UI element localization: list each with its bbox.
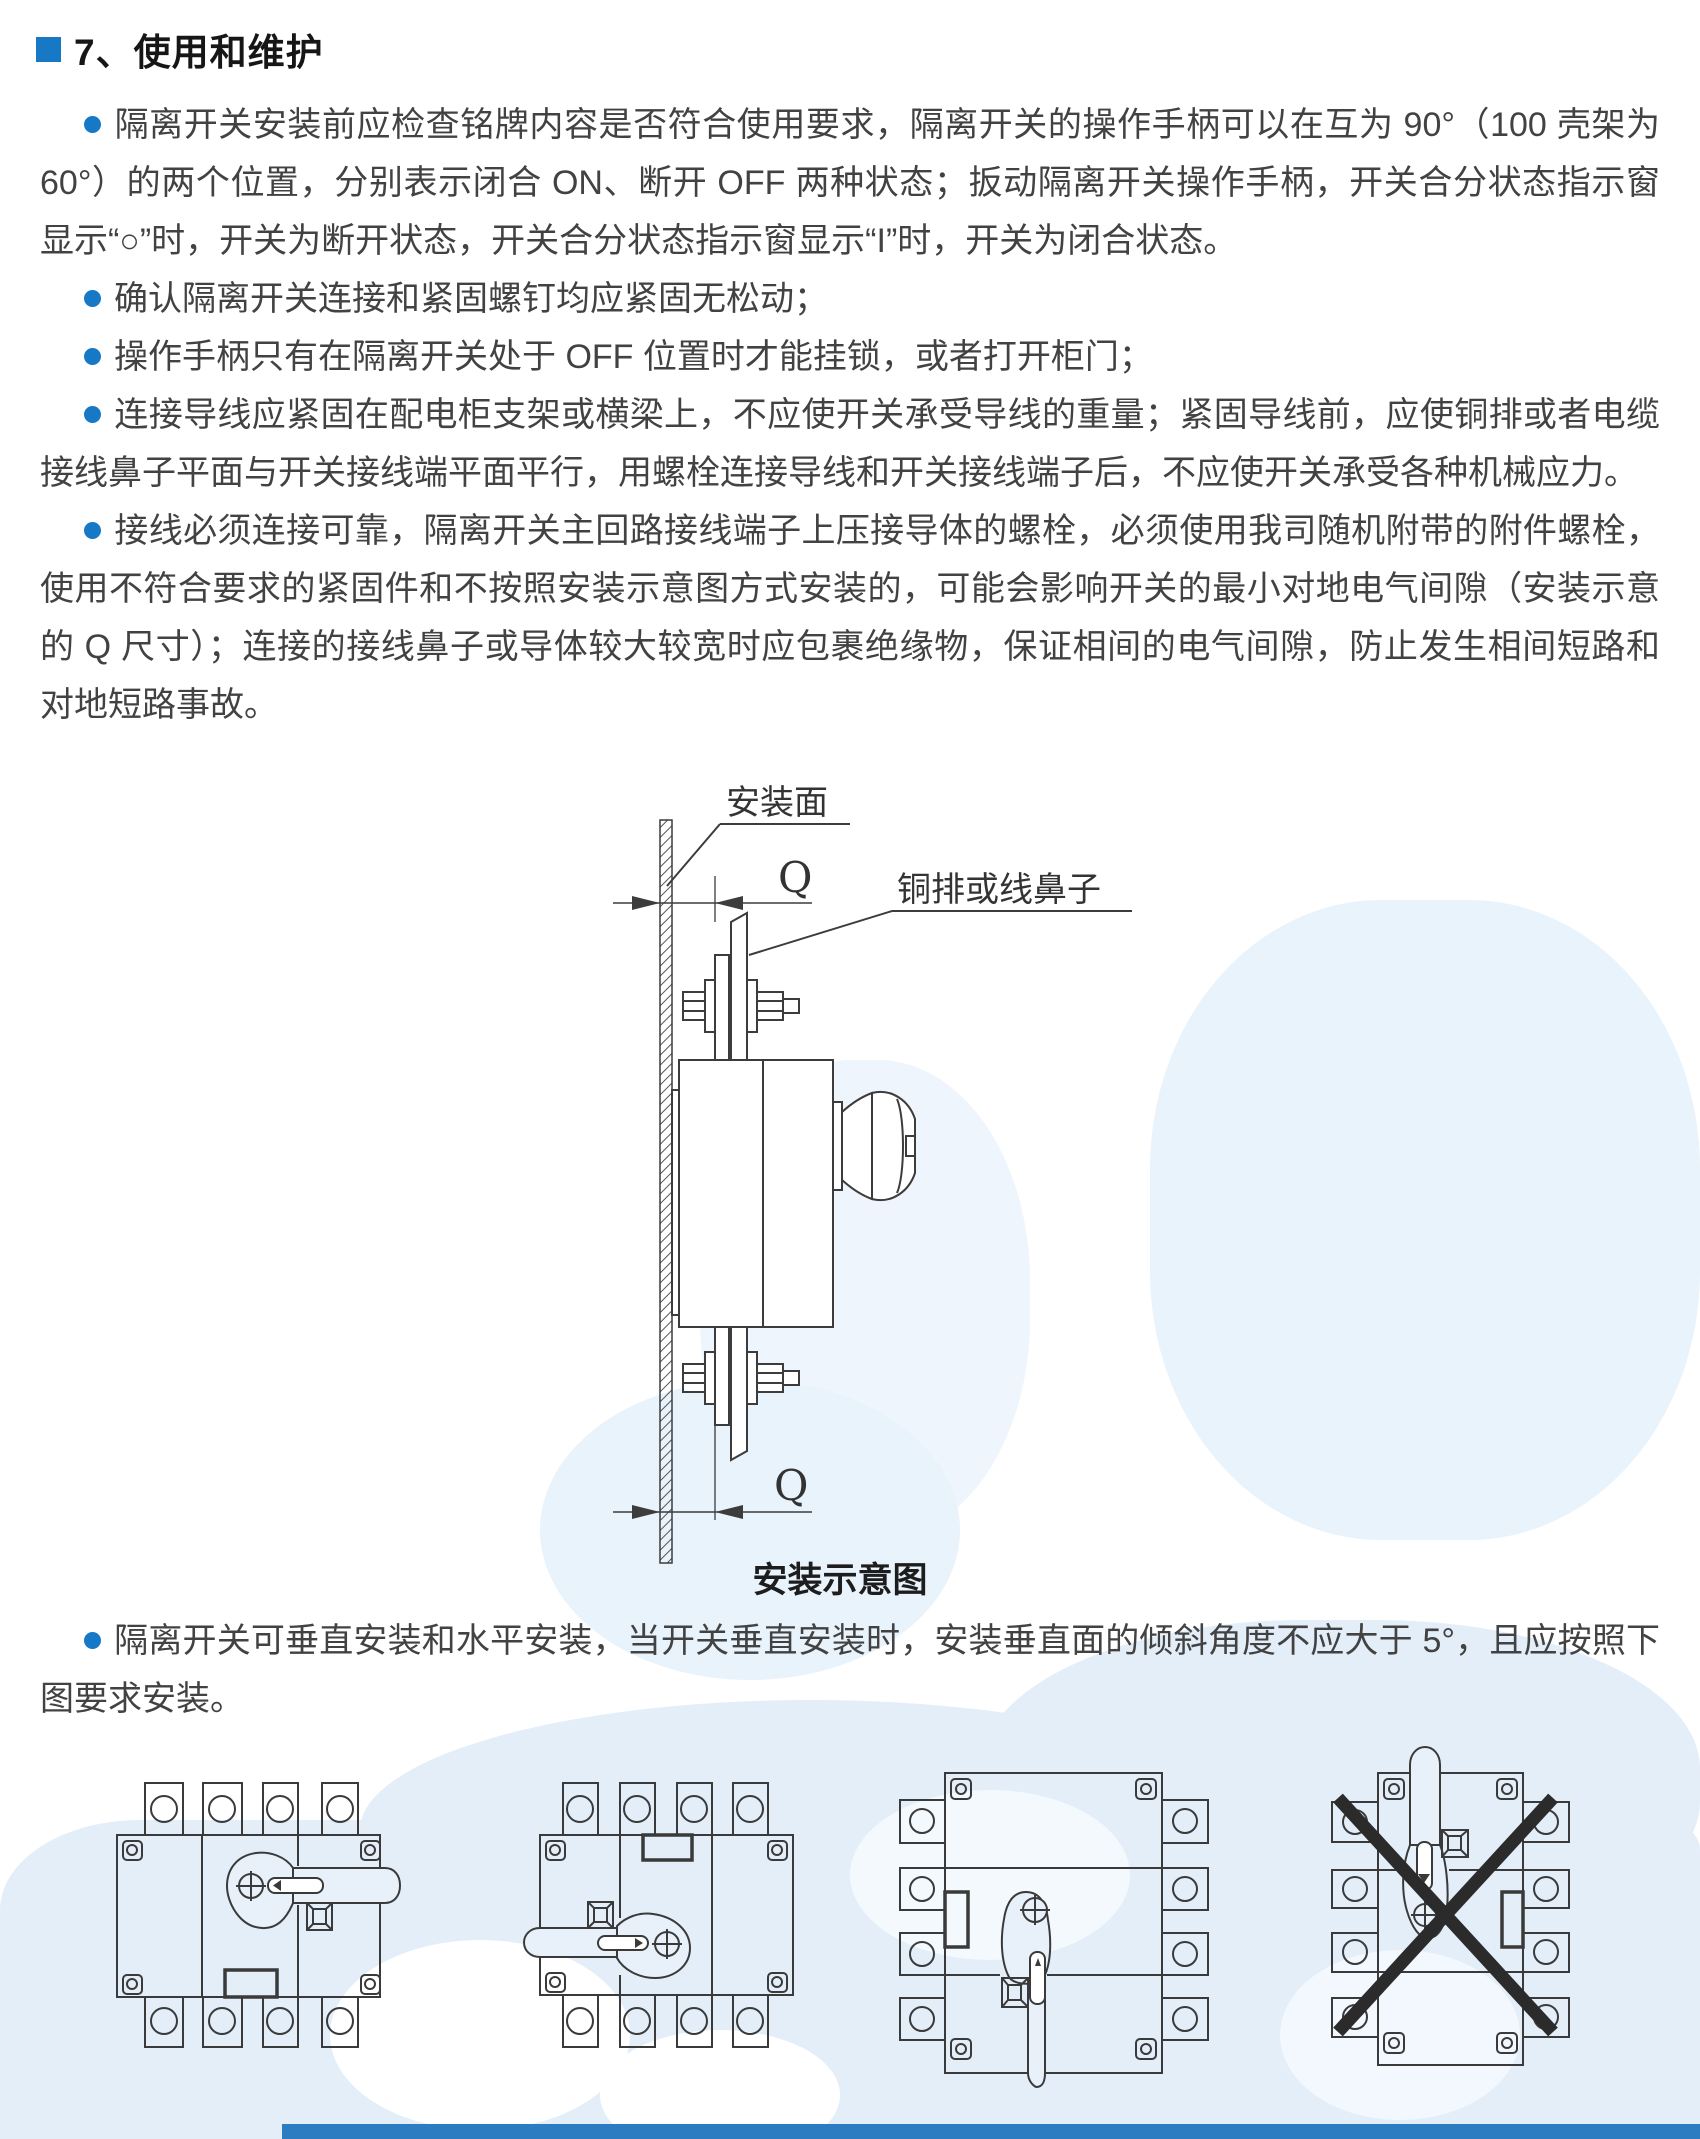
- paragraph: 隔离开关安装前应检查铭牌内容是否符合使用要求，隔离开关的操作手柄可以在互为 90…: [0, 96, 1700, 270]
- switch-body: [672, 1060, 833, 1327]
- heading-square-icon: [36, 37, 61, 62]
- handle-knob: [833, 1092, 915, 1200]
- switch-vertical-handle-down-icon: [895, 1765, 1215, 2095]
- paragraph: 隔离开关可垂直安装和水平安装，当开关垂直安装时，安装垂直面的倾斜角度不应大于 5…: [0, 1612, 1700, 1728]
- section-heading: 7、使用和维护: [36, 22, 324, 76]
- switch-vertical-handle-up-forbidden-icon: [1325, 1745, 1585, 2095]
- bullet-icon: [84, 522, 101, 539]
- paragraph: 接线必须连接可靠，隔离开关主回路接线端子上压接导体的螺栓，必须使用我司随机附带的…: [0, 502, 1700, 734]
- paragraph-text: 接线必须连接可靠，隔离开关主回路接线端子上压接导体的螺栓，必须使用我司随机附带的…: [40, 512, 1660, 724]
- busbar-label: 铜排或线鼻子: [897, 871, 1101, 909]
- paragraph-text: 连接导线应紧固在配电柜支架或横梁上，不应使开关承受导线的重量；紧固导线前，应使铜…: [40, 396, 1660, 492]
- dim-letter-top: Q: [778, 853, 812, 902]
- body-text-block: 隔离开关安装前应检查铭牌内容是否符合使用要求，隔离开关的操作手柄可以在互为 90…: [0, 96, 1700, 734]
- install-note-block: 隔离开关可垂直安装和水平安装，当开关垂直安装时，安装垂直面的倾斜角度不应大于 5…: [0, 1612, 1700, 1728]
- bullet-icon: [84, 1632, 101, 1649]
- bullet-icon: [84, 116, 101, 133]
- switch-horizontal-handle-left-icon: [522, 1778, 822, 2050]
- paragraph-text: 确认隔离开关连接和紧固螺钉均应紧固无松动；: [114, 280, 828, 318]
- installation-diagram: 安装面 Q 铜排或线鼻子 Q: [420, 770, 1220, 1650]
- paragraph: 确认隔离开关连接和紧固螺钉均应紧固无松动；: [0, 270, 1700, 328]
- mounting-surface-label: 安装面: [726, 784, 828, 822]
- paragraph: 操作手柄只有在隔离开关处于 OFF 位置时才能挂锁，或者打开柜门；: [0, 328, 1700, 386]
- top-busbar: [683, 913, 799, 1060]
- bullet-icon: [84, 290, 101, 307]
- paragraph-text: 隔离开关安装前应检查铭牌内容是否符合使用要求，隔离开关的操作手柄可以在互为 90…: [40, 106, 1660, 260]
- mounting-wall: [660, 820, 672, 1563]
- bottom-busbar: [683, 1327, 799, 1460]
- document-page: 7、使用和维护 隔离开关安装前应检查铭牌内容是否符合使用要求，隔离开关的操作手柄…: [0, 0, 1700, 2139]
- diagram-caption: 安装示意图: [640, 1552, 1040, 1603]
- dim-letter-bottom: Q: [774, 1461, 808, 1510]
- bullet-icon: [84, 348, 101, 365]
- section-title: 7、使用和维护: [74, 22, 324, 76]
- paragraph: 连接导线应紧固在配电柜支架或横梁上，不应使开关承受导线的重量；紧固导线前，应使铜…: [0, 386, 1700, 502]
- paragraph-text: 隔离开关可垂直安装和水平安装，当开关垂直安装时，安装垂直面的倾斜角度不应大于 5…: [40, 1622, 1660, 1718]
- map-shape: [1150, 900, 1700, 1540]
- bullet-icon: [84, 406, 101, 423]
- handle-icon: [1002, 1892, 1050, 2087]
- paragraph-text: 操作手柄只有在隔离开关处于 OFF 位置时才能挂锁，或者打开柜门；: [114, 338, 1153, 376]
- footer-bar: [282, 2124, 1700, 2139]
- switch-horizontal-handle-right-icon: [110, 1778, 410, 2050]
